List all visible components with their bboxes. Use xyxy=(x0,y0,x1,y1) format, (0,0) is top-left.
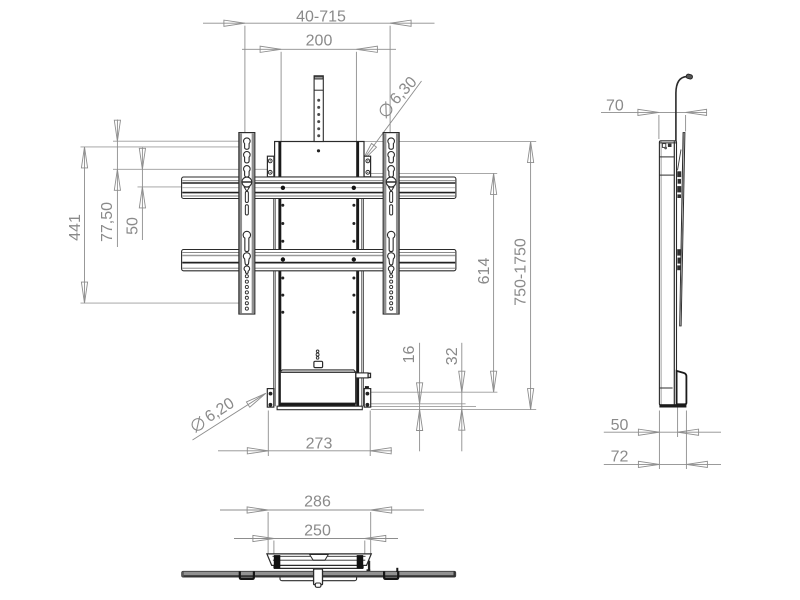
svg-text:32: 32 xyxy=(444,347,461,365)
svg-text:70: 70 xyxy=(606,97,624,114)
svg-text:40-715: 40-715 xyxy=(296,9,346,26)
svg-text:50: 50 xyxy=(611,417,629,434)
svg-text:750-1750: 750-1750 xyxy=(513,238,530,306)
svg-text:286: 286 xyxy=(304,494,331,511)
svg-text:77,50: 77,50 xyxy=(99,202,116,242)
svg-text:16: 16 xyxy=(401,346,418,364)
svg-text:614: 614 xyxy=(476,258,493,285)
svg-text:50: 50 xyxy=(125,217,142,235)
svg-text:72: 72 xyxy=(611,449,629,466)
svg-text:250: 250 xyxy=(304,523,331,540)
svg-text:200: 200 xyxy=(306,33,333,50)
svg-text:441: 441 xyxy=(67,214,84,241)
svg-text:273: 273 xyxy=(306,435,333,452)
